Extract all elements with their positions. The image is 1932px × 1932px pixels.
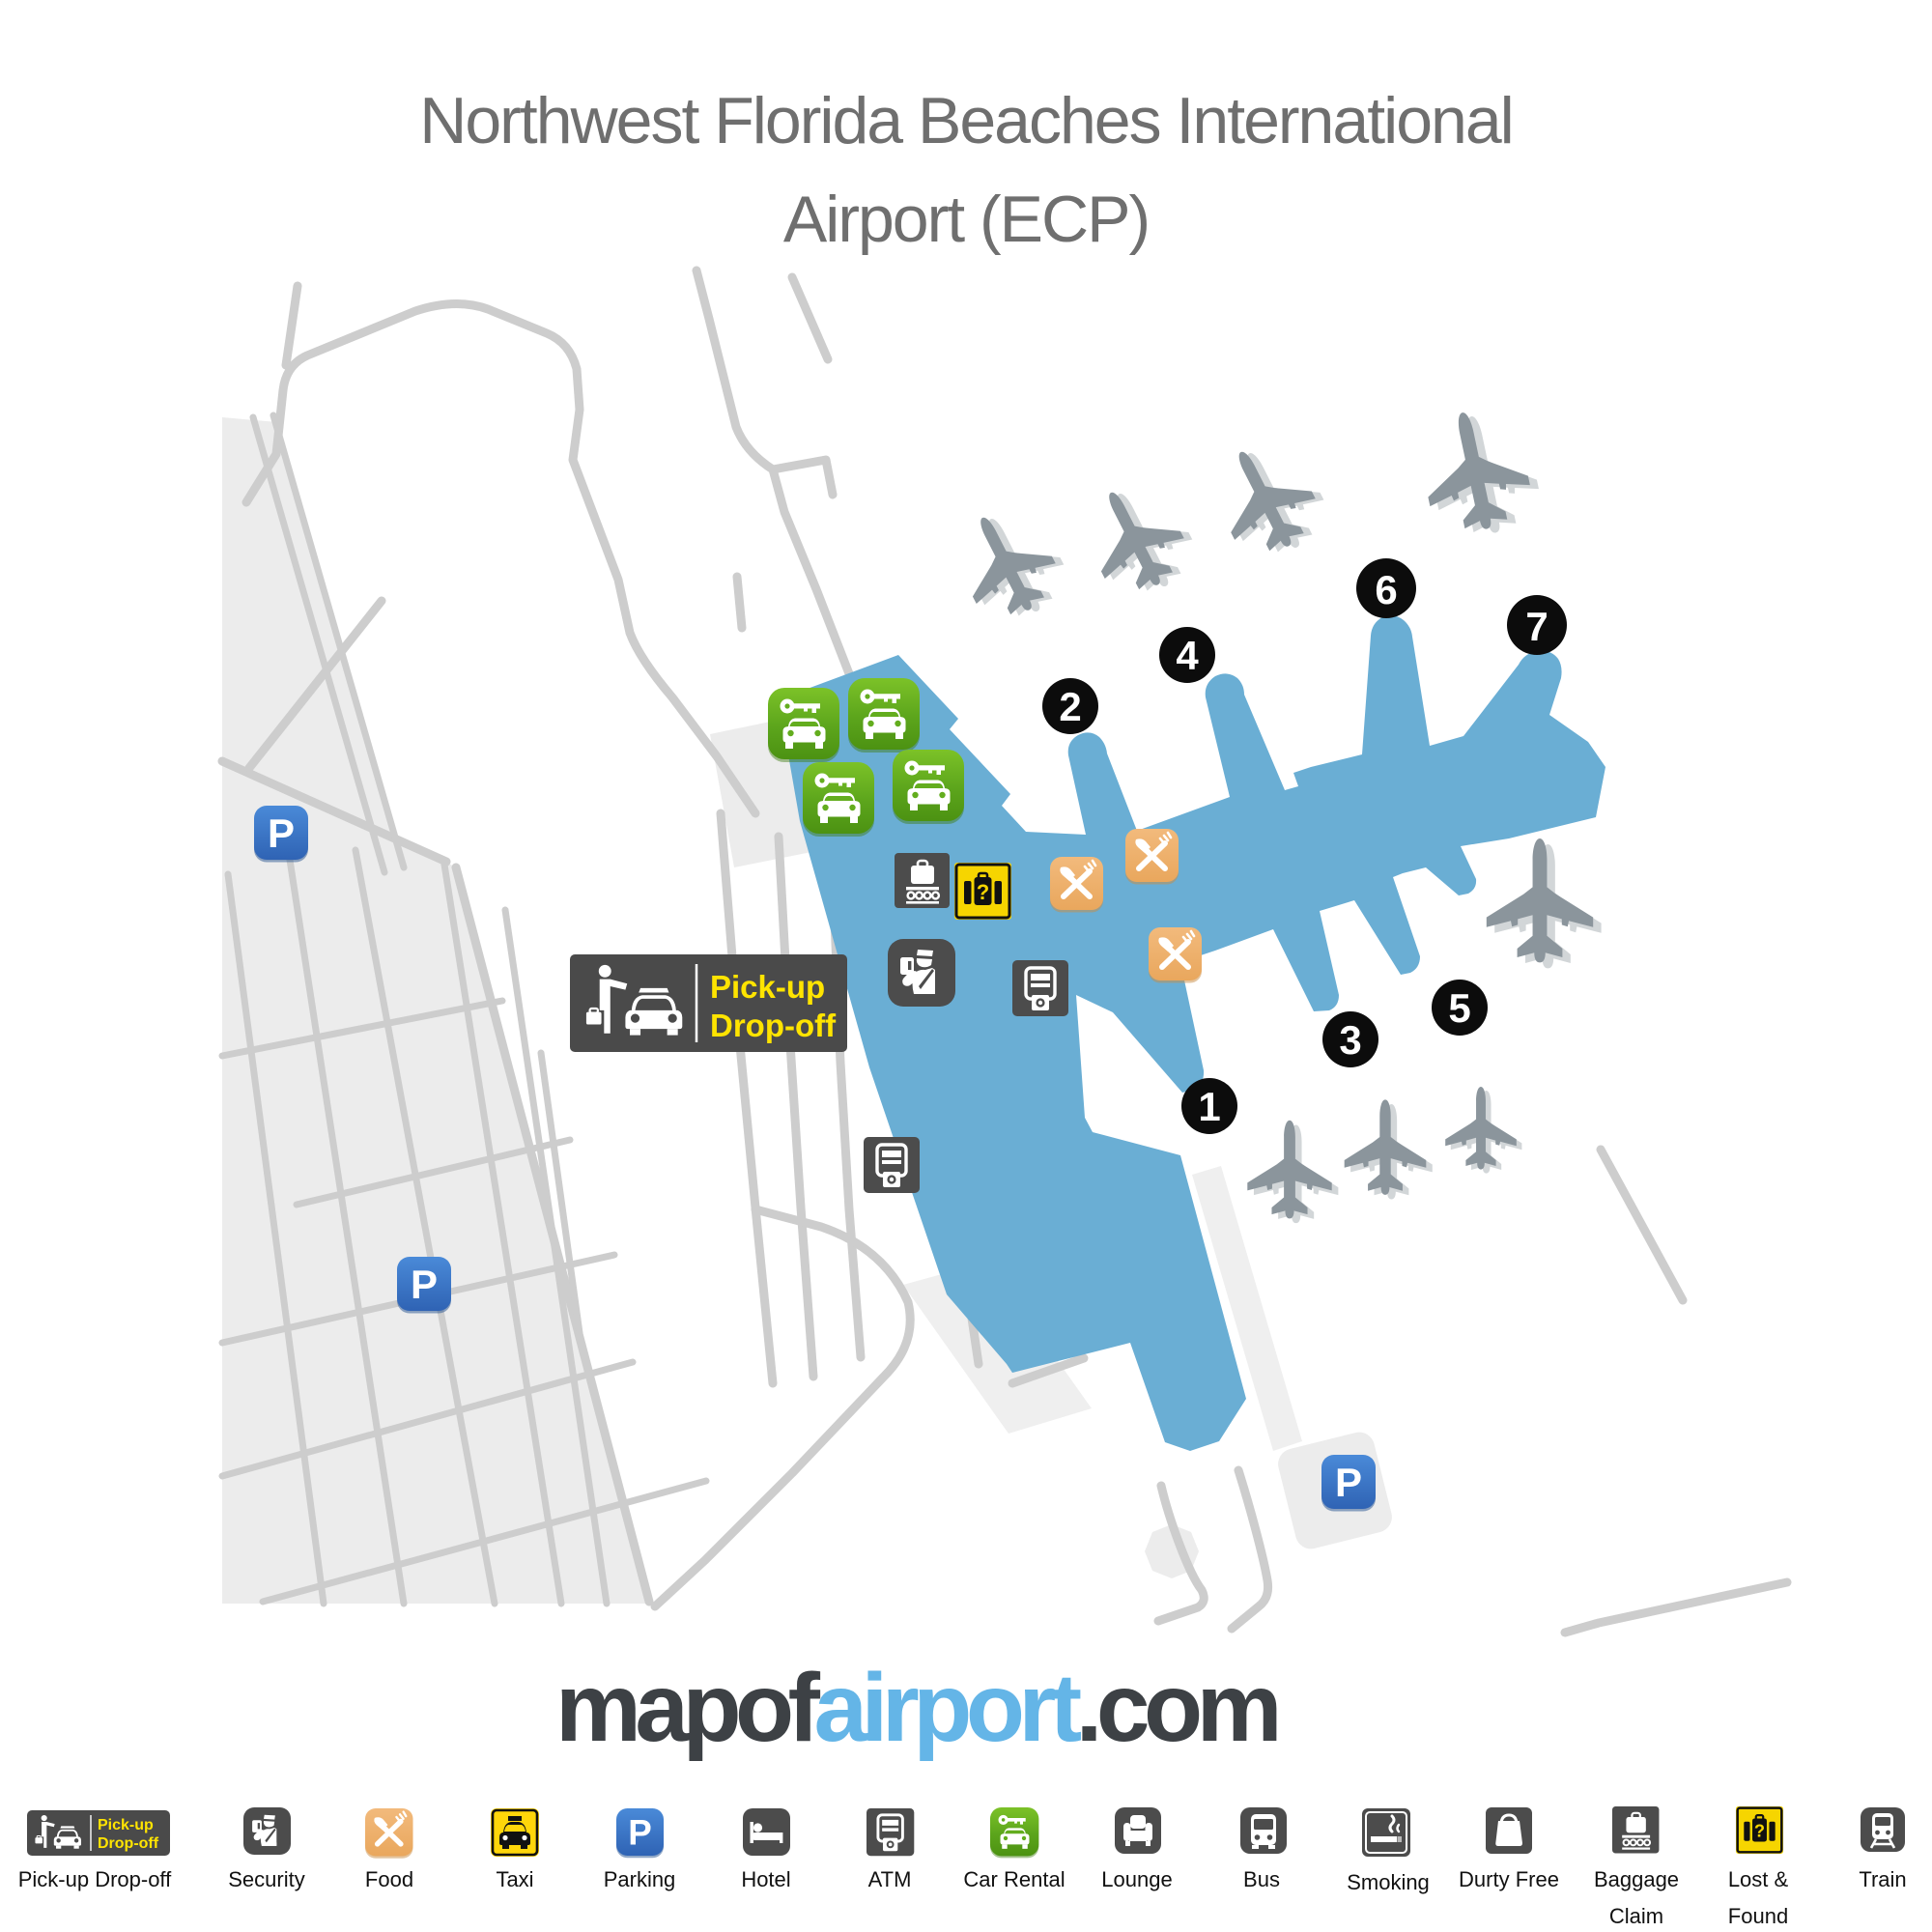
svg-text:mapofairport.com: mapofairport.com [555, 1654, 1277, 1762]
svg-text:Pick-up: Pick-up [710, 969, 825, 1005]
svg-text:1: 1 [1198, 1084, 1220, 1129]
svg-text:Smoking: Smoking [1347, 1870, 1430, 1894]
svg-text:Food: Food [365, 1867, 413, 1891]
svg-text:5: 5 [1448, 985, 1470, 1031]
svg-text:Security: Security [228, 1867, 304, 1891]
svg-text:Lost &: Lost & [1728, 1867, 1789, 1891]
svg-text:Hotel: Hotel [741, 1867, 790, 1891]
svg-text:Drop-off: Drop-off [710, 1008, 837, 1043]
svg-text:7: 7 [1525, 604, 1548, 649]
svg-text:Taxi: Taxi [496, 1867, 533, 1891]
svg-text:Pick-up Drop-off: Pick-up Drop-off [18, 1867, 172, 1891]
svg-text:Parking: Parking [604, 1867, 676, 1891]
svg-text:Lounge: Lounge [1101, 1867, 1172, 1891]
svg-text:3: 3 [1339, 1017, 1361, 1063]
svg-text:Pick-up: Pick-up [98, 1817, 154, 1833]
svg-text:Northwest Florida Beaches Inte: Northwest Florida Beaches International [419, 84, 1513, 157]
svg-text:Bus: Bus [1243, 1867, 1280, 1891]
svg-text:Claim: Claim [1609, 1904, 1663, 1928]
svg-text:Drop-off: Drop-off [98, 1835, 159, 1852]
svg-text:Airport (ECP): Airport (ECP) [783, 183, 1149, 256]
svg-text:Car Rental: Car Rental [963, 1867, 1065, 1891]
svg-text:Baggage: Baggage [1594, 1867, 1679, 1891]
svg-text:Train: Train [1859, 1867, 1906, 1891]
svg-text:6: 6 [1375, 567, 1397, 612]
svg-text:Found: Found [1728, 1904, 1788, 1928]
svg-text:4: 4 [1176, 633, 1199, 678]
svg-text:ATM: ATM [868, 1867, 912, 1891]
svg-text:Durty Free: Durty Free [1459, 1867, 1559, 1891]
svg-text:2: 2 [1059, 684, 1081, 729]
